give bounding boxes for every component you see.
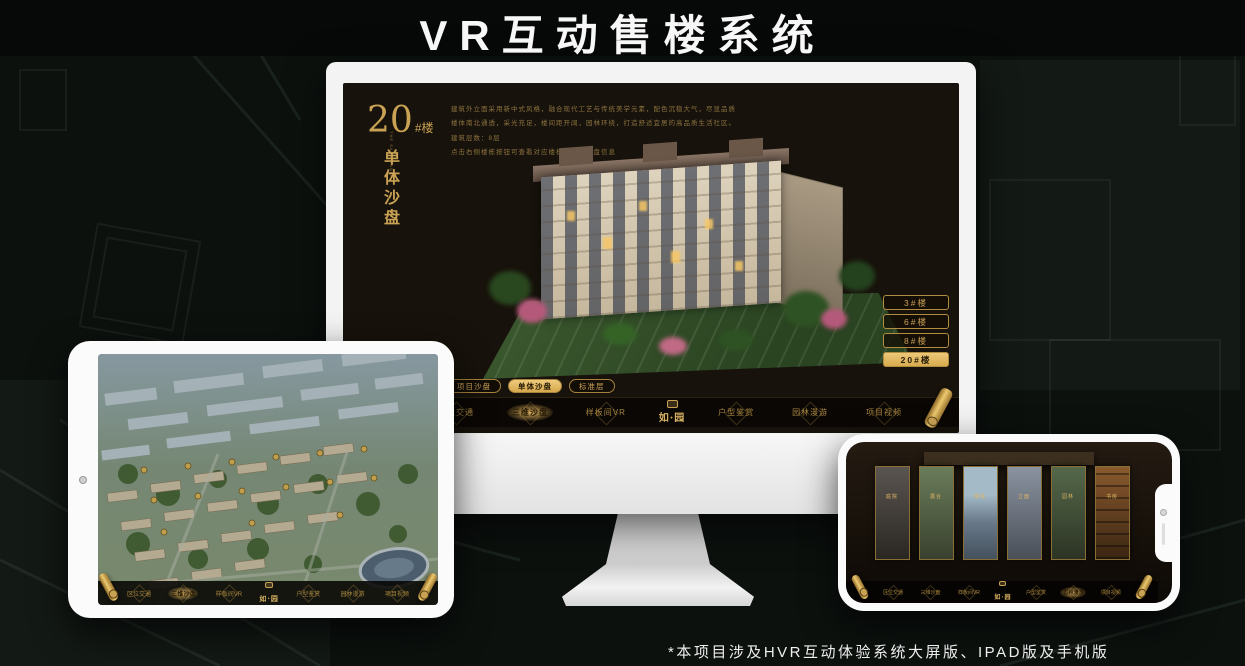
nav-item-floorplans[interactable]: 户型鉴赏 xyxy=(293,587,323,600)
gallery-panel-row: 庭院 露台 楼栋 立面 园林 书房 xyxy=(846,466,1158,560)
panel-caption: 书房 xyxy=(1096,493,1129,500)
phone-notch xyxy=(1155,484,1172,562)
gallery-panel[interactable]: 立面 xyxy=(1007,466,1042,560)
panel-caption: 园林 xyxy=(1052,493,1085,500)
flower-tree xyxy=(517,299,547,323)
page-title: VR互动售楼系统 xyxy=(0,2,1245,63)
phone-camera xyxy=(1160,509,1167,516)
roof-dormer xyxy=(559,146,593,166)
tablet-screen: 区位交通 三维沙盘 样板间VR 如·园 户型鉴赏 园林漫游 项目视频 xyxy=(98,354,438,605)
phone-device: 庭院 露台 楼栋 立面 园林 书房 区位交通 三维沙盘 样板间VR 如·园 户型… xyxy=(838,434,1180,611)
nav-item-garden-tour[interactable]: 园林漫游 xyxy=(338,587,368,600)
nav-item-showroom-vr[interactable]: 样板间VR xyxy=(955,587,983,598)
building-front-face xyxy=(541,161,781,320)
panel-caption: 露台 xyxy=(920,493,953,500)
nav-item-3d-sandbox[interactable]: 三维沙盘 xyxy=(507,404,553,421)
brand-logo-text: 如·园 xyxy=(994,594,1011,601)
gallery-panel[interactable]: 露台 xyxy=(919,466,954,560)
panel-caption: 楼栋 xyxy=(964,493,997,500)
building-3d-render[interactable] xyxy=(483,141,913,379)
floor-button-group: 3#楼 6#楼 8#楼 20#楼 xyxy=(883,295,949,367)
tree xyxy=(719,329,753,351)
floor-button-8[interactable]: 8#楼 xyxy=(883,333,949,348)
gallery-panel[interactable]: 庭院 xyxy=(875,466,910,560)
gallery-panel[interactable]: 楼栋 xyxy=(963,466,998,560)
brand-logo-text: 如·园 xyxy=(659,413,685,424)
brand-logo-icon xyxy=(999,581,1006,586)
tablet-navbar: 区位交通 三维沙盘 样板间VR 如·园 户型鉴赏 园林漫游 项目视频 xyxy=(98,581,438,605)
nav-item-location[interactable]: 区位交通 xyxy=(880,587,906,598)
brand-logo: 如·园 xyxy=(994,581,1011,603)
nav-item-garden-tour[interactable]: 园林漫游 xyxy=(1060,587,1086,598)
nav-item-floorplans[interactable]: 户型鉴赏 xyxy=(713,404,759,421)
panel-caption: 庭院 xyxy=(876,493,909,500)
promo-canvas: VR互动售楼系统 20#楼 THE SAND TABLE 单体沙盘 建筑外立面采… xyxy=(0,0,1245,666)
floor-button-3[interactable]: 3#楼 xyxy=(883,295,949,310)
nav-item-location[interactable]: 区位交通 xyxy=(124,587,154,600)
nav-item-3d-sandbox[interactable]: 三维沙盘 xyxy=(168,587,198,600)
lit-window xyxy=(705,219,713,229)
building-title: 20#楼 xyxy=(367,103,434,139)
nav-item-project-video[interactable]: 项目视频 xyxy=(1098,587,1124,598)
lit-window xyxy=(735,261,743,271)
roof-dormer xyxy=(729,138,763,158)
lit-window xyxy=(639,201,647,211)
lit-window xyxy=(567,211,575,221)
view-tab-group: 项目沙盘 单体沙盘 标准层 xyxy=(447,379,615,393)
gallery-panel[interactable]: 园林 xyxy=(1051,466,1086,560)
tablet-camera xyxy=(79,476,87,484)
description-line: 建筑外立面采用新中式风格，融合现代工艺与传统美学元素，配色沉稳大气，尽显品质 xyxy=(451,103,791,117)
nav-item-project-video[interactable]: 项目视频 xyxy=(861,404,907,421)
brand-logo-text: 如·园 xyxy=(259,594,278,603)
brand-logo: 如·园 xyxy=(659,400,685,425)
interior-ceiling-beam xyxy=(924,452,1094,465)
gallery-panel[interactable]: 书房 xyxy=(1095,466,1130,560)
panel-caption: 立面 xyxy=(1008,493,1041,500)
roof-dormer xyxy=(643,142,677,162)
nav-item-garden-tour[interactable]: 园林漫游 xyxy=(787,404,833,421)
brand-logo-icon xyxy=(667,400,678,408)
nav-item-showroom-vr[interactable]: 样板间VR xyxy=(213,587,245,600)
floor-button-20[interactable]: 20#楼 xyxy=(883,352,949,367)
footnote-text: *本项目涉及HVR互动体验系统大屏版、IPAD版及手机版 xyxy=(668,641,1109,662)
tab-single-sandbox[interactable]: 单体沙盘 xyxy=(508,379,562,393)
description-line: 楼体南北通透，采光充足，楼间距开阔，园林环绕，打造舒适宜居的高品质生活社区。 xyxy=(451,117,791,131)
flower-tree xyxy=(821,309,847,329)
phone-navbar: 区位交通 三维沙盘 样板间VR 如·园 户型鉴赏 园林漫游 项目视频 xyxy=(846,581,1158,603)
nav-item-project-video[interactable]: 项目视频 xyxy=(382,587,412,600)
masterplan-aerial-render[interactable] xyxy=(98,354,438,605)
nav-item-showroom-vr[interactable]: 样板间VR xyxy=(581,404,631,421)
tab-standard-floor[interactable]: 标准层 xyxy=(569,379,615,393)
phone-speaker xyxy=(1162,523,1165,545)
flower-tree xyxy=(659,337,687,355)
tree xyxy=(839,261,875,291)
building-subtitle-cn: 单体沙盘 xyxy=(377,149,401,229)
brand-logo: 如·园 xyxy=(259,582,278,605)
phone-screen: 庭院 露台 楼栋 立面 园林 书房 区位交通 三维沙盘 样板间VR 如·园 户型… xyxy=(846,442,1172,603)
tab-project-sandbox[interactable]: 项目沙盘 xyxy=(447,379,501,393)
building-suffix: #楼 xyxy=(415,121,434,135)
tablet-device: 区位交通 三维沙盘 样板间VR 如·园 户型鉴赏 园林漫游 项目视频 xyxy=(68,341,454,618)
tree xyxy=(603,323,637,345)
lit-window xyxy=(671,251,680,263)
lit-window xyxy=(603,237,612,249)
brand-logo-icon xyxy=(265,582,273,588)
nav-item-floorplans[interactable]: 户型鉴赏 xyxy=(1023,587,1049,598)
nav-item-3d-sandbox[interactable]: 三维沙盘 xyxy=(917,587,943,598)
floor-button-6[interactable]: 6#楼 xyxy=(883,314,949,329)
